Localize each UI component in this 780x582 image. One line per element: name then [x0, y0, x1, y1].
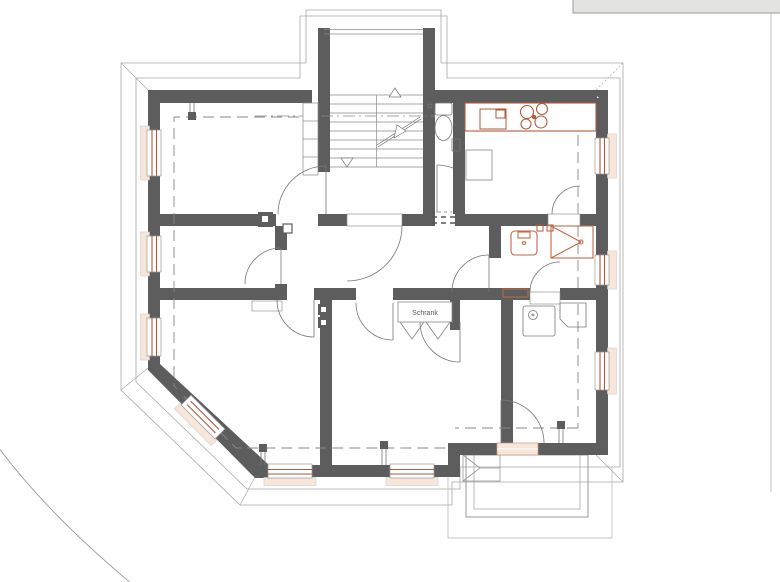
exterior-walls	[148, 28, 608, 478]
bottom-center-room-door-left	[356, 303, 393, 340]
floor-plan-drawing: Schrank	[0, 0, 780, 582]
floor-plan-page: Schrank	[0, 0, 780, 582]
wc-door	[437, 165, 453, 213]
balcony-door-sill	[497, 443, 538, 455]
window-right-2	[595, 251, 617, 289]
kitchen-table	[466, 150, 492, 180]
balcony-step	[463, 455, 500, 481]
washing-machine	[523, 306, 555, 336]
washbasin	[511, 231, 537, 255]
window-bottom-2	[386, 464, 438, 486]
desk	[560, 303, 586, 327]
bottom-right-room	[501, 303, 586, 443]
site-boundary	[0, 447, 132, 582]
staircase	[330, 88, 423, 167]
balcony	[448, 455, 612, 538]
window-left-1	[141, 126, 162, 180]
bathroom-to-room-door	[530, 262, 560, 304]
closet-label: Schrank	[412, 310, 438, 317]
shower	[551, 226, 593, 258]
window-bottom-1	[264, 464, 316, 486]
window-left-2	[141, 232, 162, 276]
window-left-3	[141, 314, 162, 360]
corridor-door	[347, 214, 402, 281]
middle-left-room-door	[245, 248, 281, 284]
stair-direction-arrows	[341, 88, 406, 167]
bathroom-door	[452, 255, 489, 292]
built-in-shelf	[303, 103, 318, 175]
window-right-1	[595, 134, 617, 178]
stair-landing-top-edge	[324, 30, 423, 35]
top-left-room-door	[278, 166, 326, 214]
window-right-3	[595, 348, 617, 394]
kitchen-door	[548, 186, 580, 226]
kitchen	[465, 103, 596, 226]
closet-folding-doors	[400, 322, 450, 339]
closet: Schrank	[398, 302, 452, 339]
lower-left-room-door	[252, 300, 314, 337]
wall-opening-dashed	[432, 217, 455, 223]
